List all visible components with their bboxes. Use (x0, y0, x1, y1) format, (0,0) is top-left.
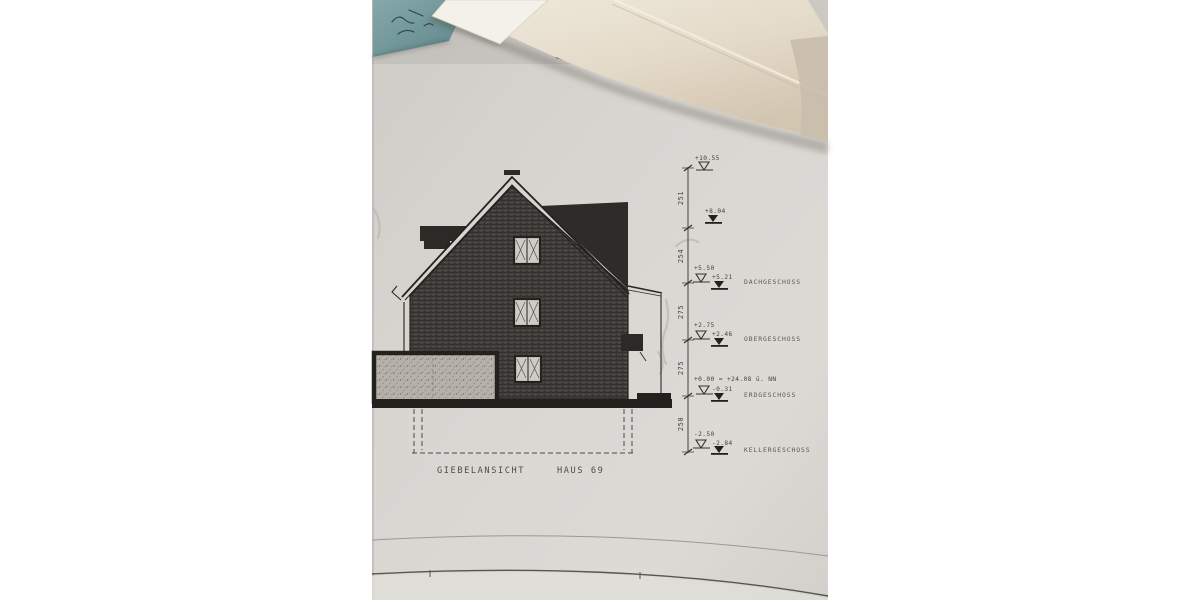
photo-of-architectural-drawing: GIEBELANSICHT HAUS 69 251 254 275 275 25… (0, 0, 1200, 600)
window-top (514, 237, 540, 264)
level-ridge-raw-value: +8.04 (705, 208, 726, 215)
ridge-cap (504, 170, 520, 175)
dim-segment-5: 250 (677, 417, 685, 431)
title-house-label: HAUS 69 (557, 466, 604, 476)
level-keller-raw: -2.84 (712, 440, 733, 447)
level-ridge-top-value: +10.55 (695, 155, 720, 162)
balcony-slab (621, 334, 643, 351)
window-middle (514, 299, 540, 326)
floor-label-obergeschoss: OBERGESCHOSS (744, 335, 801, 343)
level-keller-finished: -2.50 (694, 431, 715, 438)
level-ober-raw: +2.46 (712, 331, 733, 338)
floor-label-kellergeschoss: KELLERGESCHOSS (744, 446, 810, 454)
level-erd-raw: -0.31 (712, 386, 733, 393)
garage-annex (374, 353, 497, 402)
level-erd-finished: +0.00 = +24.08 ü. NN (694, 376, 777, 383)
level-dach-finished: +5.50 (694, 265, 715, 272)
dim-segment-2: 254 (677, 249, 685, 263)
level-dach-raw: +5.21 (712, 274, 733, 281)
photo-canvas: GIEBELANSICHT HAUS 69 251 254 275 275 25… (0, 0, 1200, 600)
title-view-label: GIEBELANSICHT (437, 466, 525, 476)
level-ober-finished: +2.75 (694, 322, 715, 329)
floor-label-erdgeschoss: ERDGESCHOSS (744, 391, 796, 399)
window-bottom (515, 356, 541, 382)
floor-label-dachgeschoss: DACHGESCHOSS (744, 278, 801, 286)
dim-segment-4: 275 (677, 361, 685, 375)
dim-segment-1: 251 (677, 191, 685, 205)
dim-segment-3: 275 (677, 305, 685, 319)
sheet-left-edge (372, 0, 374, 600)
